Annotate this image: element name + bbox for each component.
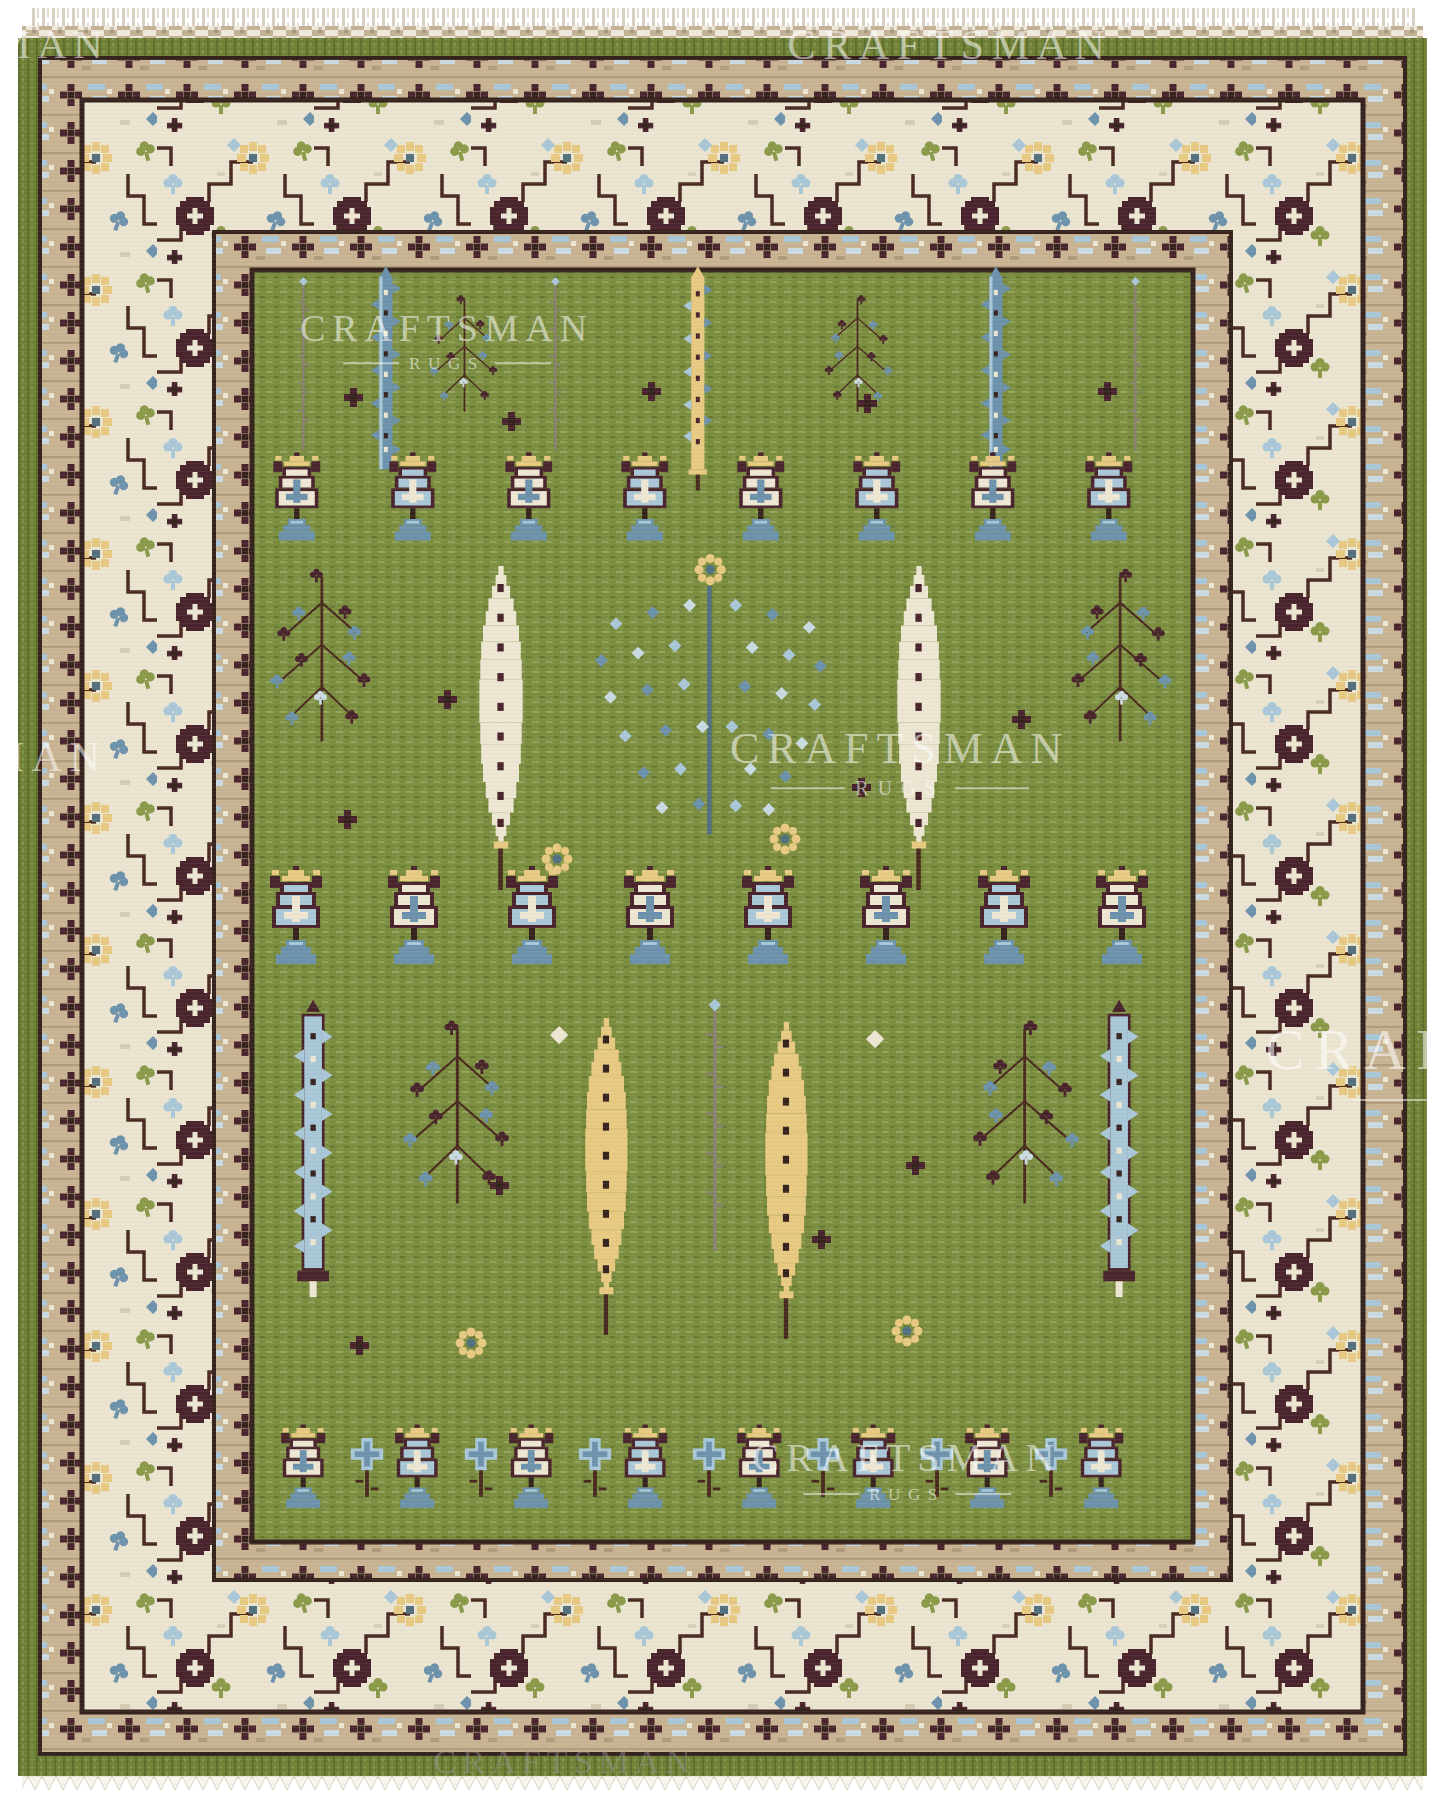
top-fringe (30, 8, 1415, 26)
rug-graphic (0, 0, 1445, 1806)
rug-photo: CRAFTSMAN CRAFTSMAN CRAFTSMAN RUGS CRAFT… (0, 0, 1445, 1806)
bottom-fringe (22, 1776, 1423, 1792)
flatweave-edge (22, 26, 1423, 38)
